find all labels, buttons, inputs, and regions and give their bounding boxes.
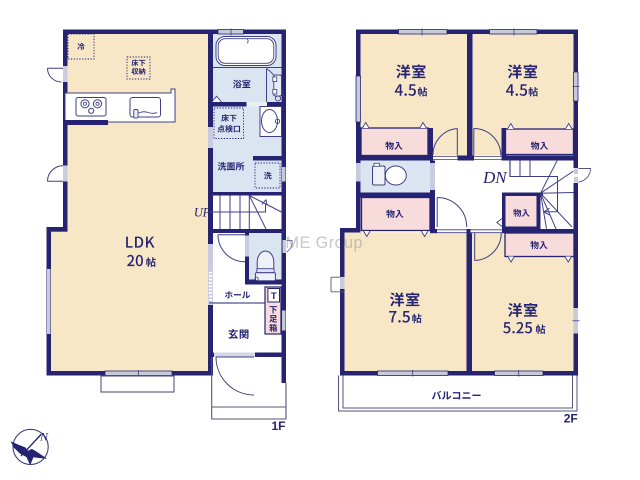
svg-text:T: T <box>271 291 277 302</box>
svg-text:DN: DN <box>482 168 508 187</box>
svg-text:ME Group: ME Group <box>286 234 363 252</box>
svg-text:1F: 1F <box>271 419 285 433</box>
svg-text:UP: UP <box>194 206 211 220</box>
svg-text:2F: 2F <box>564 411 578 425</box>
svg-text:N: N <box>39 430 49 444</box>
